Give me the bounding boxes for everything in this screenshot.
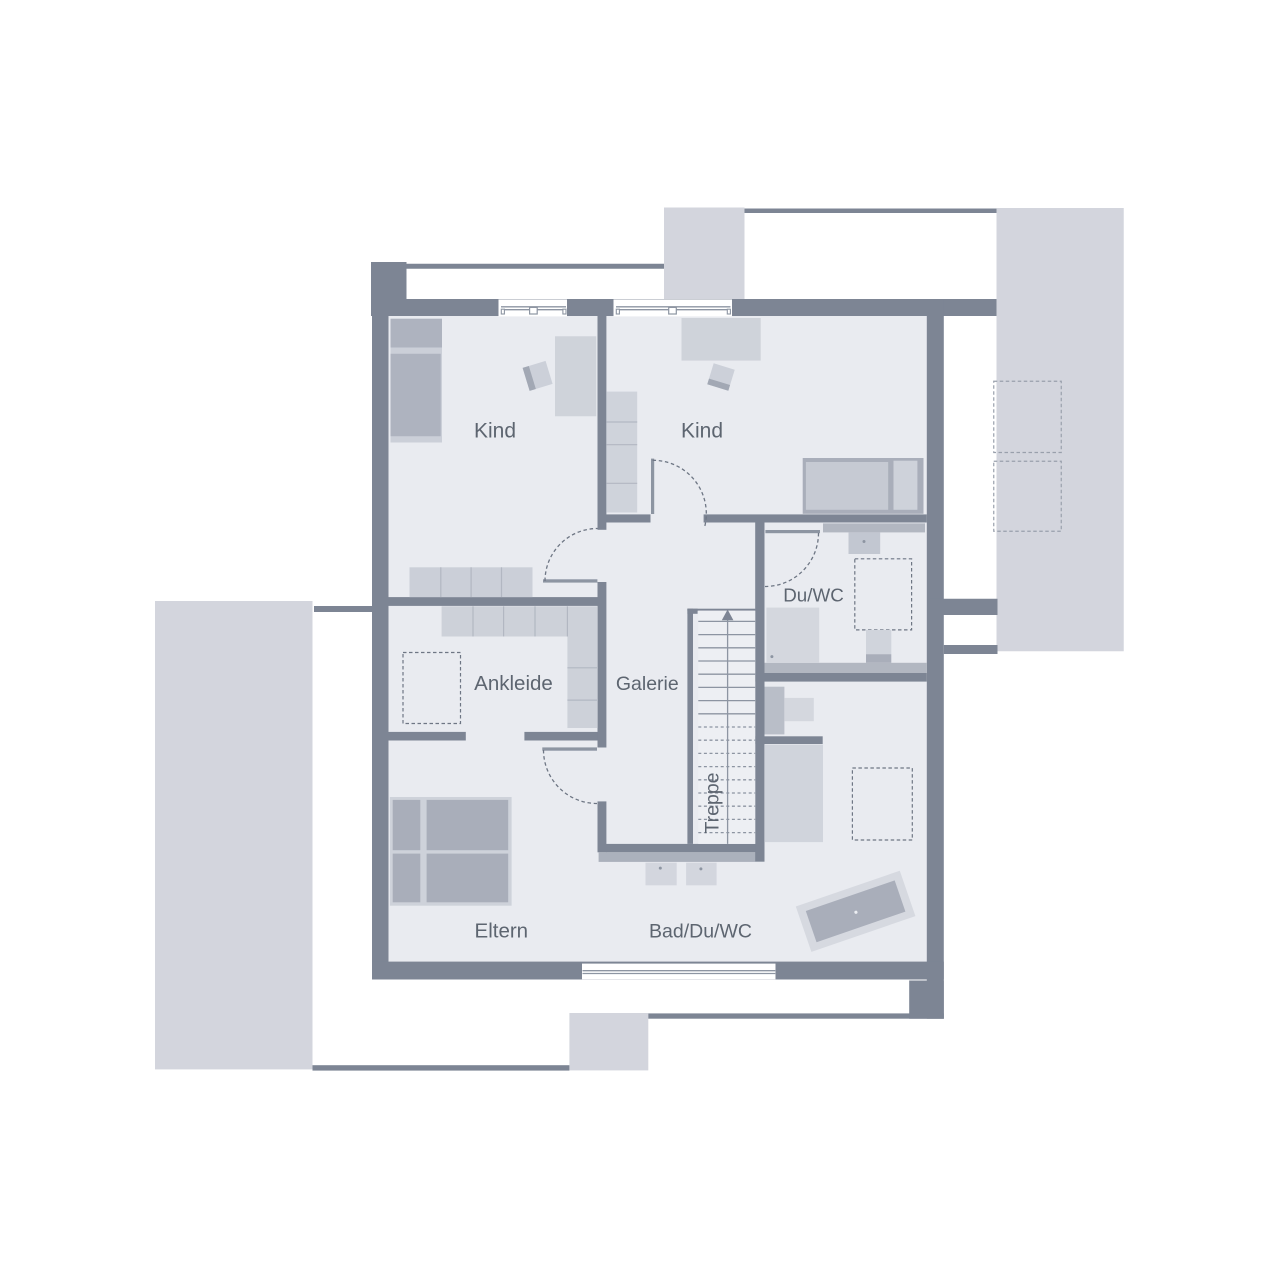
svg-text:Kind: Kind — [681, 420, 723, 443]
svg-text:Galerie: Galerie — [616, 673, 679, 695]
svg-text:Treppe: Treppe — [702, 772, 724, 833]
svg-text:Kind: Kind — [474, 420, 516, 443]
svg-text:Eltern: Eltern — [475, 920, 529, 943]
svg-text:Bad/Du/WC: Bad/Du/WC — [649, 921, 752, 943]
svg-text:Du/WC: Du/WC — [783, 585, 844, 606]
svg-text:Ankleide: Ankleide — [474, 672, 553, 695]
